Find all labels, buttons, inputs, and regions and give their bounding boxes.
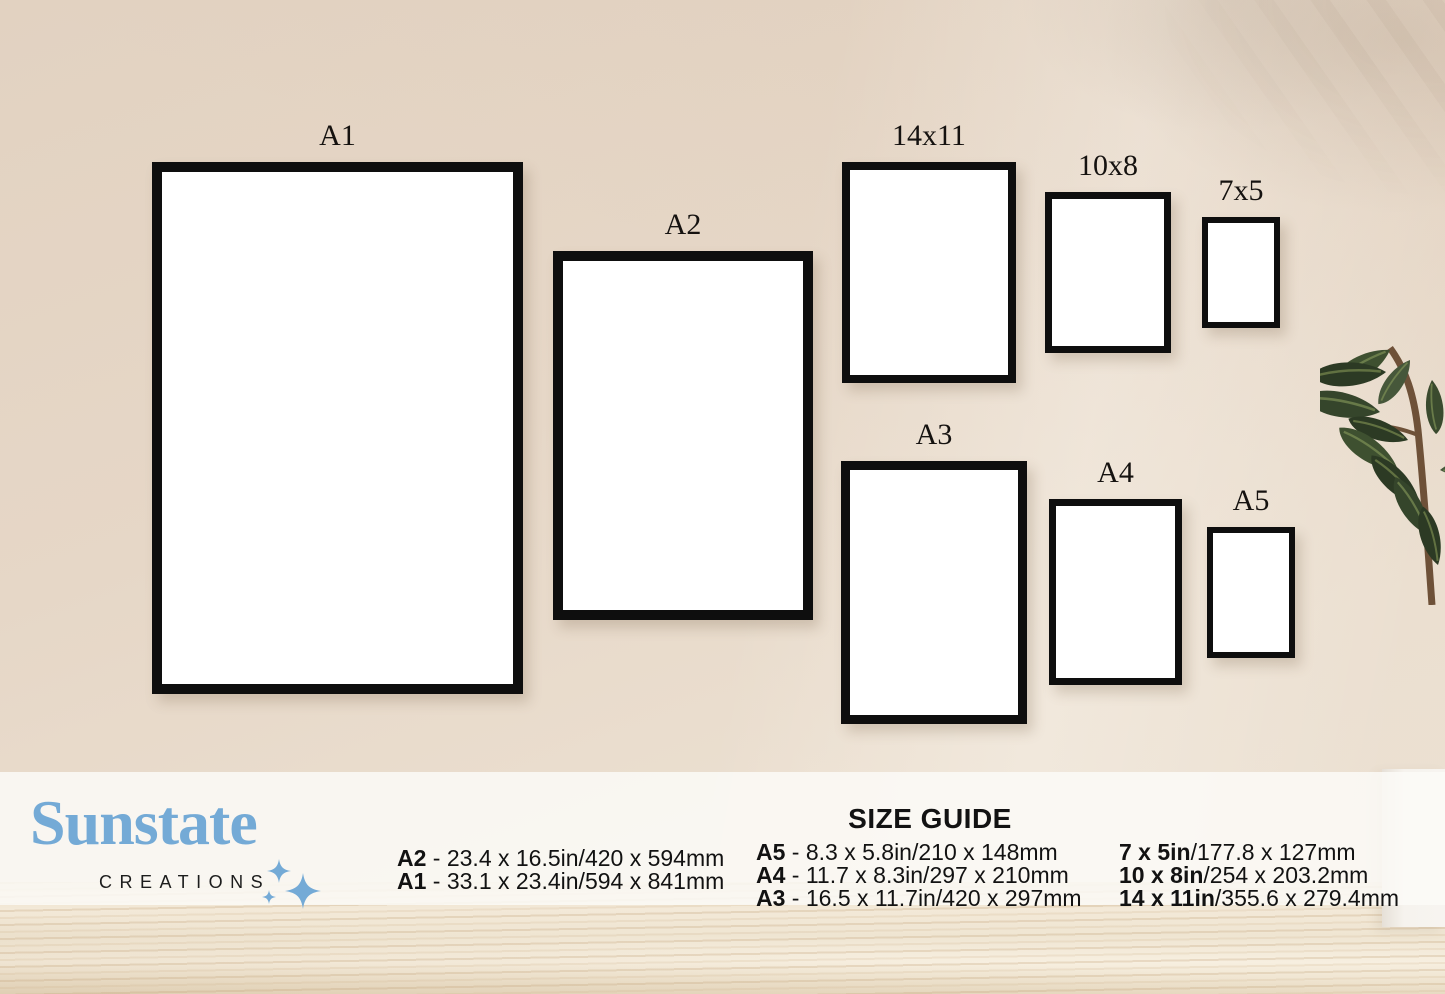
frame-10x8-print: [1045, 192, 1171, 353]
frame-a4-label: A4: [1097, 455, 1134, 491]
frame-a3-label: A3: [916, 417, 953, 453]
mockup-scene: A1 A2 14x11 10x8 7x5 A3 A4 A5 Sunstate C…: [0, 0, 1445, 994]
size-guide-column-3: 7 x 5in/177.8 x 127mm 10 x 8in/254 x 203…: [1119, 841, 1399, 910]
size-guide-column-1: A2 - 23.4 x 16.5in/420 x 594mm A1 - 33.1…: [397, 847, 724, 893]
frame-a2: A2: [553, 207, 813, 620]
size-row: A5 - 8.3 x 5.8in/210 x 148mm: [756, 841, 1082, 864]
size-row: 7 x 5in/177.8 x 127mm: [1119, 841, 1399, 864]
frame-a1-label: A1: [319, 118, 356, 154]
frame-10x8-label: 10x8: [1078, 148, 1138, 184]
frame-14x11: 14x11: [842, 118, 1016, 383]
size-row: 14 x 11in/355.6 x 279.4mm: [1119, 887, 1399, 910]
size-guide-column-2: A5 - 8.3 x 5.8in/210 x 148mm A4 - 11.7 x…: [756, 841, 1082, 910]
frame-a1-print: [152, 162, 523, 694]
frame-a3-print: [841, 461, 1027, 724]
plant-icon: [1320, 320, 1445, 605]
size-row: A4 - 11.7 x 8.3in/297 x 210mm: [756, 864, 1082, 887]
brand-subtitle: CREATIONS: [99, 872, 270, 893]
size-dims: - 33.1 x 23.4in/594 x 841mm: [426, 868, 724, 894]
frame-a3: A3: [841, 417, 1027, 724]
frame-a5-print: [1207, 527, 1295, 658]
size-name: A3: [756, 885, 785, 911]
size-guide-title: SIZE GUIDE: [848, 803, 1012, 835]
frame-14x11-print: [842, 162, 1016, 383]
frame-a1: A1: [152, 118, 523, 694]
size-row: A1 - 33.1 x 23.4in/594 x 841mm: [397, 870, 724, 893]
frame-a4-print: [1049, 499, 1182, 685]
sparkles-icon: [258, 855, 324, 911]
brand-wordmark: Sunstate: [30, 791, 257, 855]
size-dims: - 16.5 x 11.7in/420 x 297mm: [785, 885, 1081, 911]
frame-7x5: 7x5: [1202, 173, 1280, 328]
size-name: A1: [397, 868, 426, 894]
frame-7x5-label: 7x5: [1219, 173, 1264, 209]
frame-a4: A4: [1049, 455, 1182, 685]
frame-a5-label: A5: [1233, 483, 1270, 519]
size-name: 14 x 11in: [1119, 885, 1215, 911]
frame-a2-label: A2: [665, 207, 702, 243]
frame-a5: A5: [1207, 483, 1295, 658]
frame-10x8: 10x8: [1045, 148, 1171, 353]
size-row: A2 - 23.4 x 16.5in/420 x 594mm: [397, 847, 724, 870]
size-row: A3 - 16.5 x 11.7in/420 x 297mm: [756, 887, 1082, 910]
size-dims: /355.6 x 279.4mm: [1215, 885, 1399, 911]
frame-7x5-print: [1202, 217, 1280, 328]
frame-14x11-label: 14x11: [892, 118, 966, 154]
size-row: 10 x 8in/254 x 203.2mm: [1119, 864, 1399, 887]
frame-a2-print: [553, 251, 813, 620]
